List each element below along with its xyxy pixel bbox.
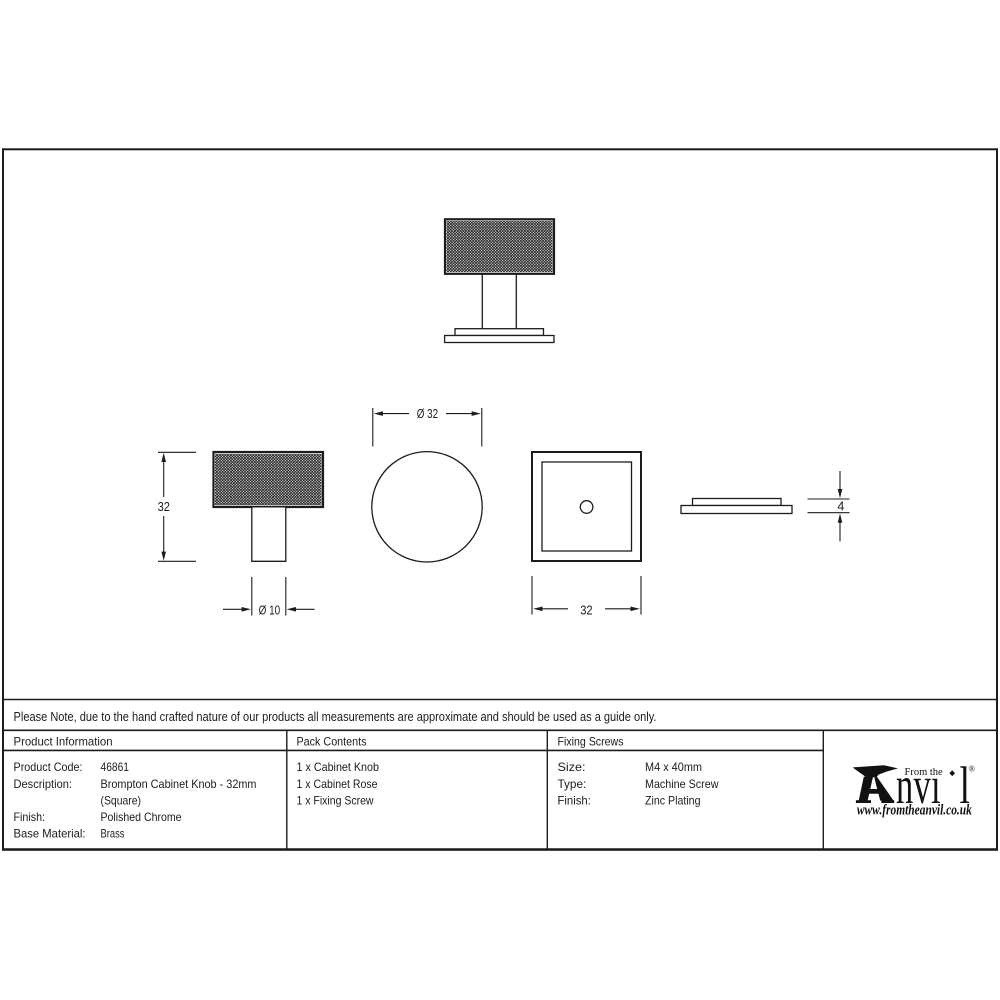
svg-text:Ø 10: Ø 10 xyxy=(259,604,281,618)
svg-text:Zinc Plating: Zinc Plating xyxy=(645,793,701,807)
svg-text:Please Note, due to the hand c: Please Note, due to the hand crafted nat… xyxy=(14,710,657,724)
svg-text:Ø 32: Ø 32 xyxy=(417,407,438,421)
svg-text:®: ® xyxy=(969,764,976,774)
svg-text:Product Information: Product Information xyxy=(14,735,113,749)
svg-text:Description:: Description: xyxy=(14,777,73,791)
svg-text:Size:: Size: xyxy=(558,760,586,774)
svg-text:(Square): (Square) xyxy=(101,793,142,807)
svg-text:32: 32 xyxy=(158,500,170,514)
svg-text:Brompton Cabinet Knob - 32mm: Brompton Cabinet Knob - 32mm xyxy=(101,777,257,791)
svg-text:46861: 46861 xyxy=(101,760,130,774)
svg-text:1 x Cabinet Knob: 1 x Cabinet Knob xyxy=(297,760,380,774)
svg-text:www.fromtheanvil.co.uk: www.fromtheanvil.co.uk xyxy=(857,803,972,819)
svg-text:M4 x 40mm: M4 x 40mm xyxy=(645,760,702,774)
svg-text:32: 32 xyxy=(580,603,592,617)
svg-text:4: 4 xyxy=(837,499,844,513)
svg-text:Finish:: Finish: xyxy=(14,810,46,824)
svg-text:Fixing Screws: Fixing Screws xyxy=(558,735,624,749)
svg-text:1 x Cabinet Rose: 1 x Cabinet Rose xyxy=(297,777,378,791)
svg-text:Base Material:: Base Material: xyxy=(14,827,86,841)
svg-text:Polished Chrome: Polished Chrome xyxy=(101,810,182,824)
svg-text:Product Code:: Product Code: xyxy=(14,760,83,774)
svg-text:Brass: Brass xyxy=(101,827,125,841)
svg-text:Finish:: Finish: xyxy=(558,793,591,807)
svg-text:Pack Contents: Pack Contents xyxy=(297,735,367,749)
svg-text:Type:: Type: xyxy=(558,777,587,791)
svg-text:1 x Fixing Screw: 1 x Fixing Screw xyxy=(297,793,374,807)
svg-text:Machine Screw: Machine Screw xyxy=(645,777,719,791)
